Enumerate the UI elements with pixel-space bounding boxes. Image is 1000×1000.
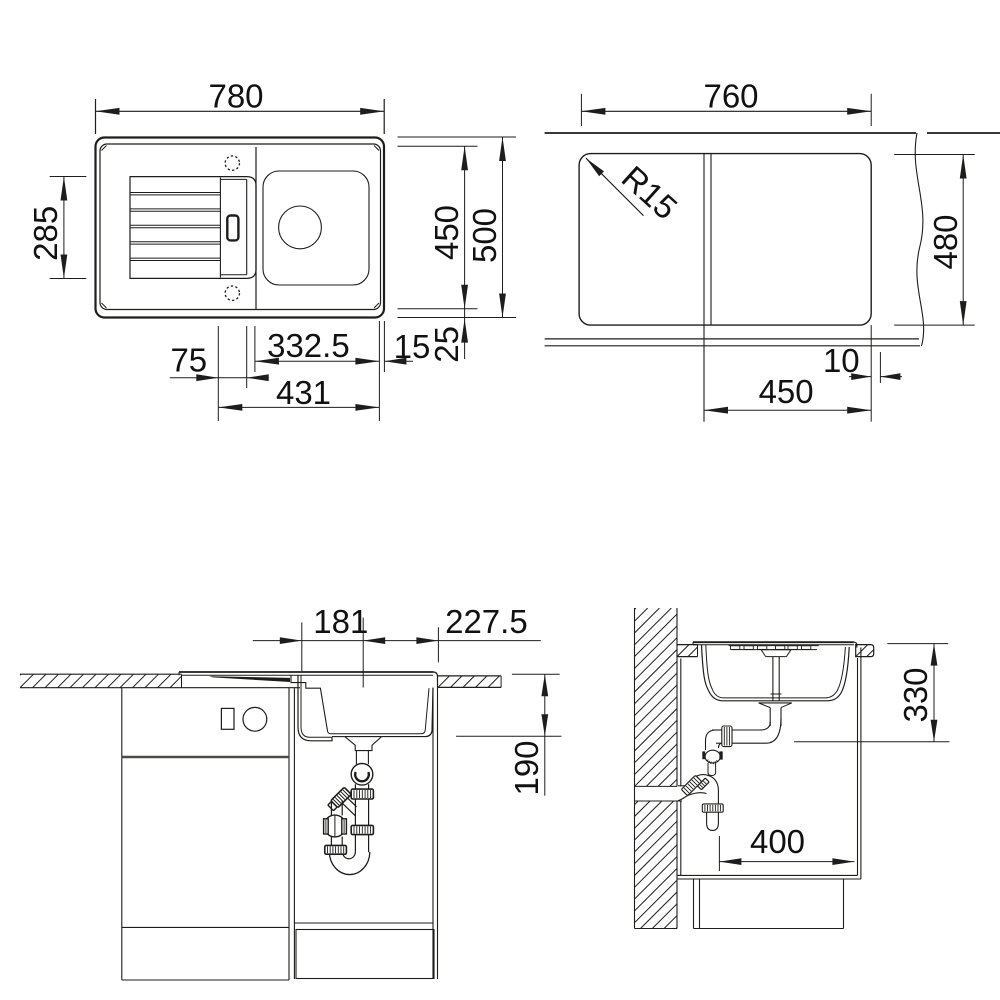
svg-text:400: 400 xyxy=(750,823,805,860)
svg-text:190: 190 xyxy=(508,740,545,795)
svg-text:450: 450 xyxy=(428,205,465,260)
svg-text:760: 760 xyxy=(703,78,758,115)
svg-text:285: 285 xyxy=(27,206,64,261)
svg-text:10: 10 xyxy=(823,342,860,379)
svg-text:75: 75 xyxy=(170,342,207,379)
svg-text:R15: R15 xyxy=(615,158,685,226)
svg-text:181: 181 xyxy=(313,603,368,640)
svg-text:25: 25 xyxy=(428,326,465,363)
svg-text:450: 450 xyxy=(759,373,814,410)
svg-text:15: 15 xyxy=(394,328,431,365)
svg-text:227.5: 227.5 xyxy=(445,603,528,640)
svg-text:480: 480 xyxy=(927,214,964,269)
svg-text:780: 780 xyxy=(208,78,263,115)
svg-text:332.5: 332.5 xyxy=(267,327,350,364)
svg-text:431: 431 xyxy=(276,374,331,411)
svg-text:500: 500 xyxy=(466,208,503,263)
svg-text:330: 330 xyxy=(897,667,934,722)
